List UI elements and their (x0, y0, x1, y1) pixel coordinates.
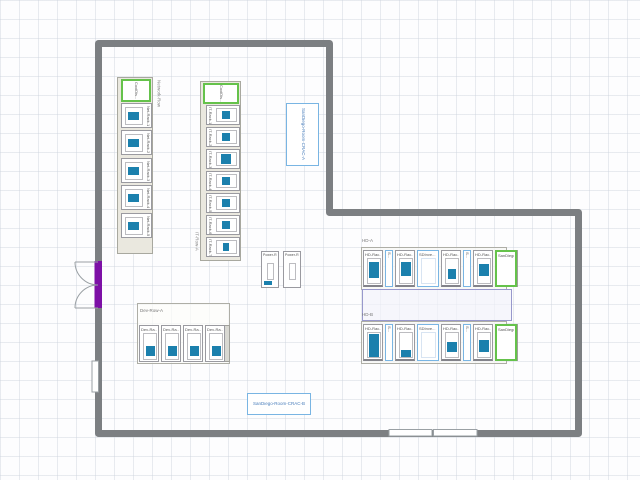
hd-b-rack-4-label: HD-Rac... (475, 326, 491, 331)
net-rack-5-label: Net-Rack-5 (146, 216, 150, 236)
dev-rack-1-label: Dev-Ra... (141, 327, 157, 332)
hd-a-panel[interactable]: SDInve... (417, 250, 439, 287)
net-rack-1[interactable]: Net-Rack-1 (121, 103, 152, 128)
hd-b-sensor-2-label: S... (465, 326, 469, 332)
power-unit-1-label: Power-R... (263, 253, 277, 258)
hd-a-end-crac[interactable]: SanDiego... (495, 250, 517, 287)
it-rack-1-label: IT-Rack-1 (208, 107, 212, 124)
hd-b-row-label: HD-B (362, 313, 373, 318)
it-rack-6-label: IT-Rack-6 (208, 217, 212, 234)
dev-rack-1[interactable]: Dev-Ra... (139, 325, 159, 362)
cooling-unit-2-label: CoolDis... (219, 85, 223, 102)
hd-b-rack-3-label: HD-Rac... (443, 326, 459, 331)
hd-a-sensor-2[interactable]: S... (463, 250, 471, 287)
hd-b-sensor-2[interactable]: S... (463, 324, 471, 361)
hd-b-end-crac-label: SanDiego... (498, 327, 514, 332)
it-rack-2-label: IT-Rack-2 (208, 129, 212, 146)
hd-b-sensor-1[interactable]: S... (385, 324, 393, 361)
cooling-unit-label: CoolDis... (134, 82, 138, 99)
it-rack-5[interactable]: IT-Rack-5 (206, 193, 240, 213)
crac-b-label: SanDiego-Room-CRAC-B (253, 402, 305, 407)
dev-rack-3[interactable]: Dev-Ra... (183, 325, 203, 362)
floorplan-canvas: CoolDis... Network-Row Net-Rack-1 Net-Ra… (0, 0, 640, 480)
net-rack-4[interactable]: Net-Rack-4 (121, 185, 152, 210)
dev-row-label: Dev-Row-A (140, 309, 163, 314)
crac-a-unit[interactable]: SanDiego-Room-CRAC-A (286, 103, 319, 166)
window-left (92, 361, 99, 392)
dev-rack-2-label: Dev-Ra... (163, 327, 179, 332)
it-rack-7[interactable]: IT-Rack-7 (206, 237, 240, 257)
dev-rack-3-label: Dev-Ra... (185, 327, 201, 332)
it-rack-3[interactable]: IT-Rack-3 (206, 149, 240, 169)
net-rack-3[interactable]: Net-Rack-3 (121, 158, 152, 183)
hd-b-rack-1[interactable]: HD-Rac... (363, 324, 383, 361)
dev-rack-4[interactable]: Dev-Ra... (205, 325, 225, 362)
crac-b-unit[interactable]: SanDiego-Room-CRAC-B (247, 393, 311, 415)
power-unit-2[interactable]: Power-R... (283, 251, 301, 288)
power-unit-1[interactable]: Power-R... (261, 251, 279, 288)
hd-b-rack-1-label: HD-Rac... (365, 326, 381, 331)
hd-a-rack-3[interactable]: HD-Rac... (441, 250, 461, 287)
hd-a-rack-2-label: HD-Rac... (397, 252, 413, 257)
hd-a-panel-label: SDInve... (419, 252, 437, 257)
network-row-label: Network-Row (156, 80, 161, 140)
hd-a-rack-1-label: HD-Rac... (365, 252, 381, 257)
hd-b-rack-3[interactable]: HD-Rac... (441, 324, 461, 361)
it-rack-3-label: IT-Rack-3 (208, 151, 212, 168)
it-rack-4-label: IT-Rack-4 (208, 173, 212, 190)
hd-a-rack-4-label: HD-Rac... (475, 252, 491, 257)
hd-b-panel[interactable]: SDInve... (417, 324, 439, 361)
window-bottom-1 (389, 430, 432, 437)
room-wall-path (99, 44, 579, 434)
hd-b-panel-label: SDInve... (419, 326, 437, 331)
it-rack-5-label: IT-Rack-5 (208, 195, 212, 212)
cooling-distribution-unit-2[interactable]: CoolDis... (203, 83, 239, 104)
wall-outline (0, 0, 640, 480)
hd-b-sensor-1-label: S... (387, 326, 391, 332)
it-row-label: IT-Row-A (194, 232, 199, 260)
net-rack-5[interactable]: Net-Rack-5 (121, 213, 152, 238)
hd-a-row-label: HD-A (362, 239, 373, 244)
hd-a-sensor-2-label: S... (465, 252, 469, 258)
net-rack-3-label: Net-Rack-3 (146, 161, 150, 181)
hd-b-rack-2-label: HD-Rac... (397, 326, 413, 331)
dev-rack-4-label: Dev-Ra... (207, 327, 223, 332)
it-rack-7-label: IT-Rack-7 (208, 239, 212, 256)
net-rack-4-label: Net-Rack-4 (146, 188, 150, 208)
hd-a-end-crac-label: SanDiego... (498, 253, 514, 258)
net-rack-2[interactable]: Net-Rack-2 (121, 130, 152, 155)
window-bottom-2 (434, 430, 478, 437)
hd-a-rack-1[interactable]: HD-Rac... (363, 250, 383, 287)
hd-b-rack-4[interactable]: HD-Rac... (473, 324, 493, 361)
hd-b-rack-2[interactable]: HD-Rac... (395, 324, 415, 361)
containment-aisle[interactable] (362, 289, 512, 321)
net-rack-1-label: Net-Rack-1 (146, 106, 150, 126)
it-rack-6[interactable]: IT-Rack-6 (206, 215, 240, 235)
dev-rack-2[interactable]: Dev-Ra... (161, 325, 181, 362)
it-rack-4[interactable]: IT-Rack-4 (206, 171, 240, 191)
hd-b-end-crac[interactable]: SanDiego... (495, 324, 517, 361)
net-rack-2-label: Net-Rack-2 (146, 133, 150, 153)
hd-a-rack-4[interactable]: HD-Rac... (473, 250, 493, 287)
it-rack-1[interactable]: IT-Rack-1 (206, 105, 240, 125)
hd-a-sensor-1[interactable]: S... (385, 250, 393, 287)
hd-a-rack-2[interactable]: HD-Rac... (395, 250, 415, 287)
power-unit-2-label: Power-R... (285, 253, 299, 258)
hd-a-sensor-1-label: S... (387, 252, 391, 258)
crac-a-label: SanDiego-Room-CRAC-A (300, 108, 305, 160)
hd-a-rack-3-label: HD-Rac... (443, 252, 459, 257)
cooling-distribution-unit[interactable]: CoolDis... (121, 79, 151, 102)
it-rack-2[interactable]: IT-Rack-2 (206, 127, 240, 147)
